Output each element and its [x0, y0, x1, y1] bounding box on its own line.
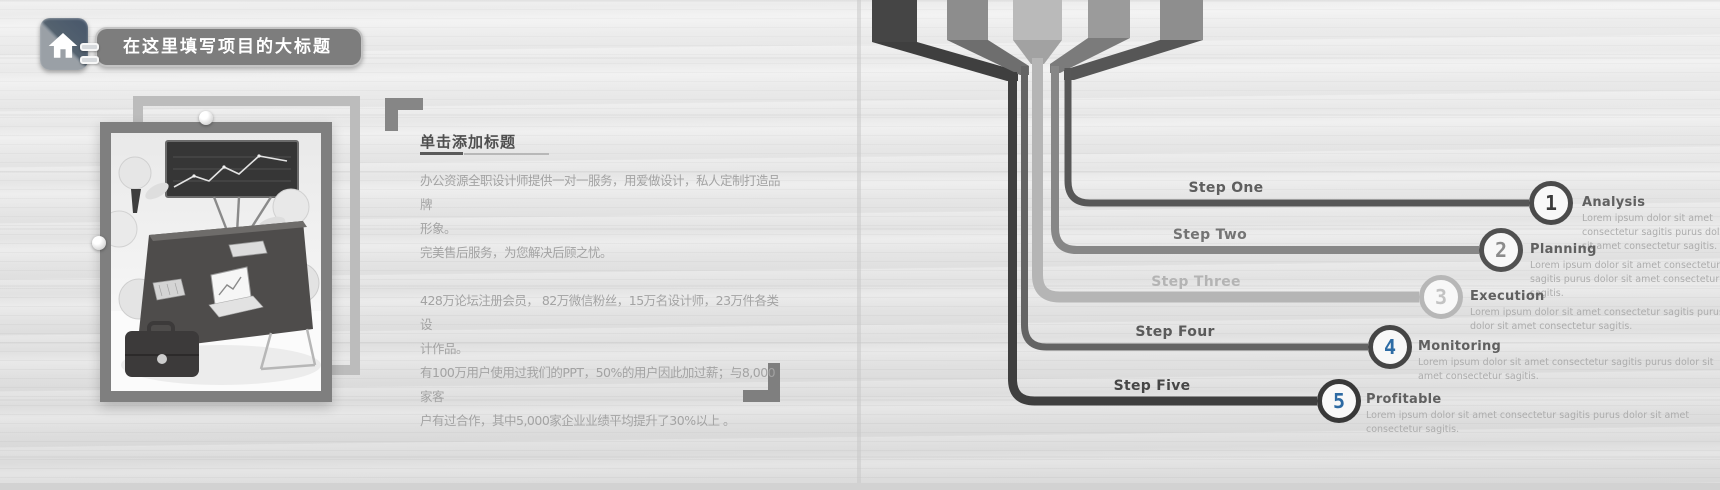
- step-number: 2: [1483, 238, 1519, 262]
- step-label: Step Five: [1067, 378, 1237, 394]
- step-label: Step Two: [1125, 227, 1295, 243]
- presentation-canvas: { "left_slide": { "header": { "icon": "h…: [0, 0, 1720, 490]
- step-label: Step Three: [1111, 274, 1281, 290]
- step-description: Lorem ipsum dolor sit amet consectetur s…: [1418, 356, 1718, 384]
- pin-dot: [92, 236, 106, 250]
- corner-bracket-top-left: [385, 98, 423, 131]
- home-icon-glyph: [47, 33, 79, 59]
- step-description: Lorem ipsum dolor sit amet consectetur s…: [1530, 259, 1720, 301]
- step-title: Monitoring: [1418, 339, 1501, 354]
- step-description: Lorem ipsum dolor sit amet consectetur s…: [1366, 409, 1718, 437]
- content-heading: 单击添加标题: [420, 131, 516, 152]
- photo-frame-front: [100, 122, 332, 402]
- step-description: Lorem ipsum dolor sit amet consectetur s…: [1582, 212, 1720, 254]
- connector-link-icon: [80, 56, 99, 64]
- step-title: Execution: [1470, 289, 1545, 304]
- step-title: Profitable: [1366, 392, 1442, 407]
- meeting-photo: [111, 133, 321, 391]
- step-title: Planning: [1530, 242, 1597, 257]
- step-number: 5: [1321, 389, 1357, 413]
- step-label: Step One: [1141, 180, 1311, 196]
- content-body-text: 办公资源全职设计师提供一对一服务，用爱做设计，私人定制打造品牌 形象。 完美售后…: [420, 169, 785, 433]
- pin-dot: [199, 111, 213, 125]
- step-title: Analysis: [1582, 195, 1645, 210]
- step-number: 1: [1533, 191, 1569, 215]
- step-description: Lorem ipsum dolor sit amet consectetur s…: [1470, 306, 1720, 334]
- step-label: Step Four: [1090, 324, 1260, 340]
- slide-title-banner: 在这里填写项目的大标题: [95, 27, 363, 67]
- heading-underline-light: [464, 153, 549, 155]
- connector-link-icon: [80, 43, 99, 51]
- step-number: 3: [1423, 285, 1459, 309]
- step-number: 4: [1372, 335, 1408, 359]
- heading-underline-dark: [420, 152, 463, 155]
